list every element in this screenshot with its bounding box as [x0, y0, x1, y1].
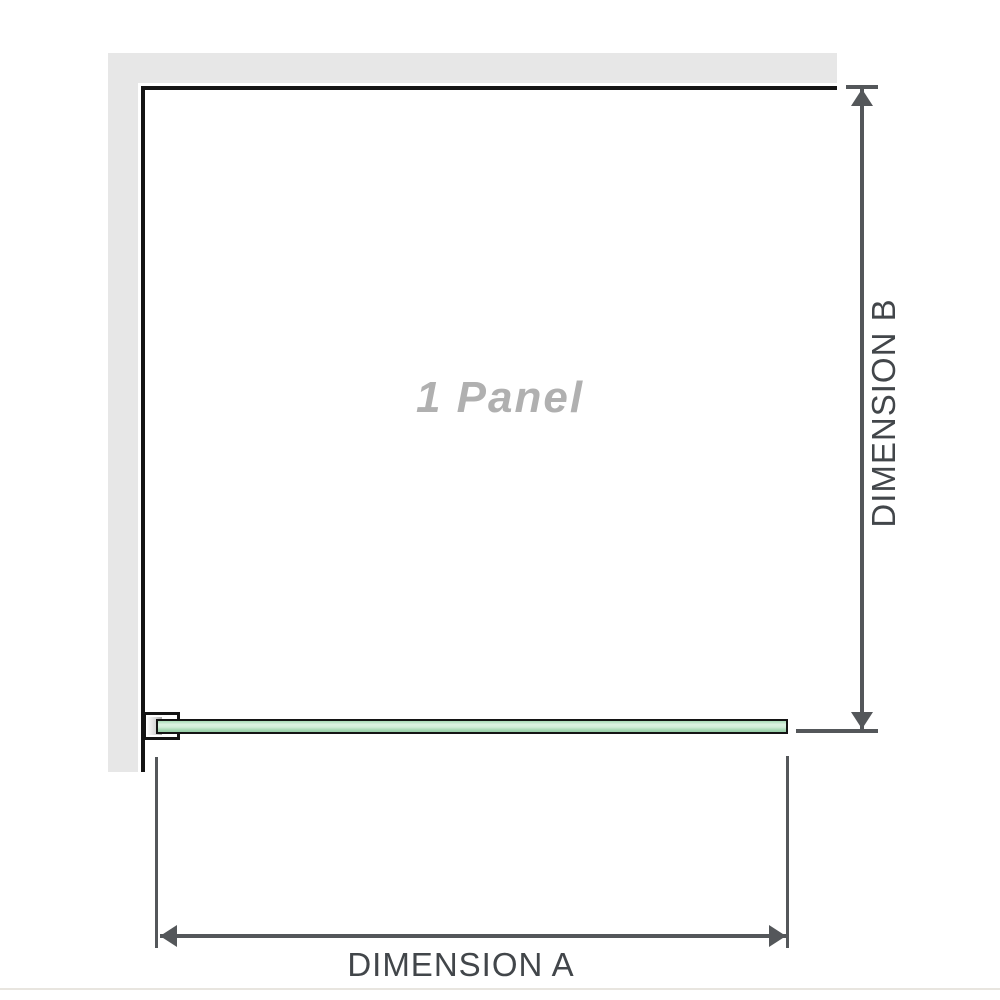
dimension-a-left-extension-line — [155, 757, 158, 948]
footer-divider — [0, 988, 1000, 990]
glass-panel — [156, 719, 788, 734]
panel-opening-top-edge — [141, 86, 837, 90]
dimension-a-line — [160, 934, 786, 938]
wall-left-bar — [108, 53, 138, 772]
arrowhead-left-icon — [160, 925, 177, 947]
dimension-b-label: DIMENSION B — [864, 263, 904, 563]
dimension-a-right-extension-line — [786, 756, 789, 948]
panel-count-label: 1 Panel — [340, 368, 660, 428]
arrowhead-up-icon — [851, 89, 873, 106]
arrowhead-right-icon — [769, 925, 786, 947]
wall-top-bar — [108, 53, 837, 83]
arrowhead-down-icon — [851, 712, 873, 729]
dimension-b-bottom-tick — [796, 729, 878, 733]
panel-dimension-diagram: 1 Panel DIMENSION B DIMENSION A — [0, 0, 1000, 1000]
panel-opening-left-edge — [141, 86, 145, 772]
dimension-a-label: DIMENSION A — [311, 946, 611, 984]
